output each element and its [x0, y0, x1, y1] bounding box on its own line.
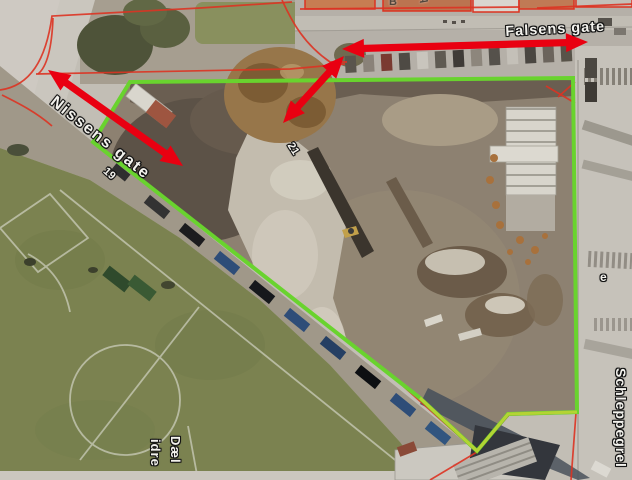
area-label-line2: idre	[148, 439, 162, 467]
aerial-imagery	[0, 0, 632, 480]
map-viewport[interactable]: Falsens gate Nissens gate Schleppegrel D…	[0, 0, 632, 480]
area-label-line1: Dæl	[168, 436, 182, 464]
partial-label-e: e	[600, 271, 607, 284]
street-label-schleppegrels-gate: Schleppegrel	[613, 368, 628, 468]
partial-glyph-b: B	[389, 0, 397, 8]
